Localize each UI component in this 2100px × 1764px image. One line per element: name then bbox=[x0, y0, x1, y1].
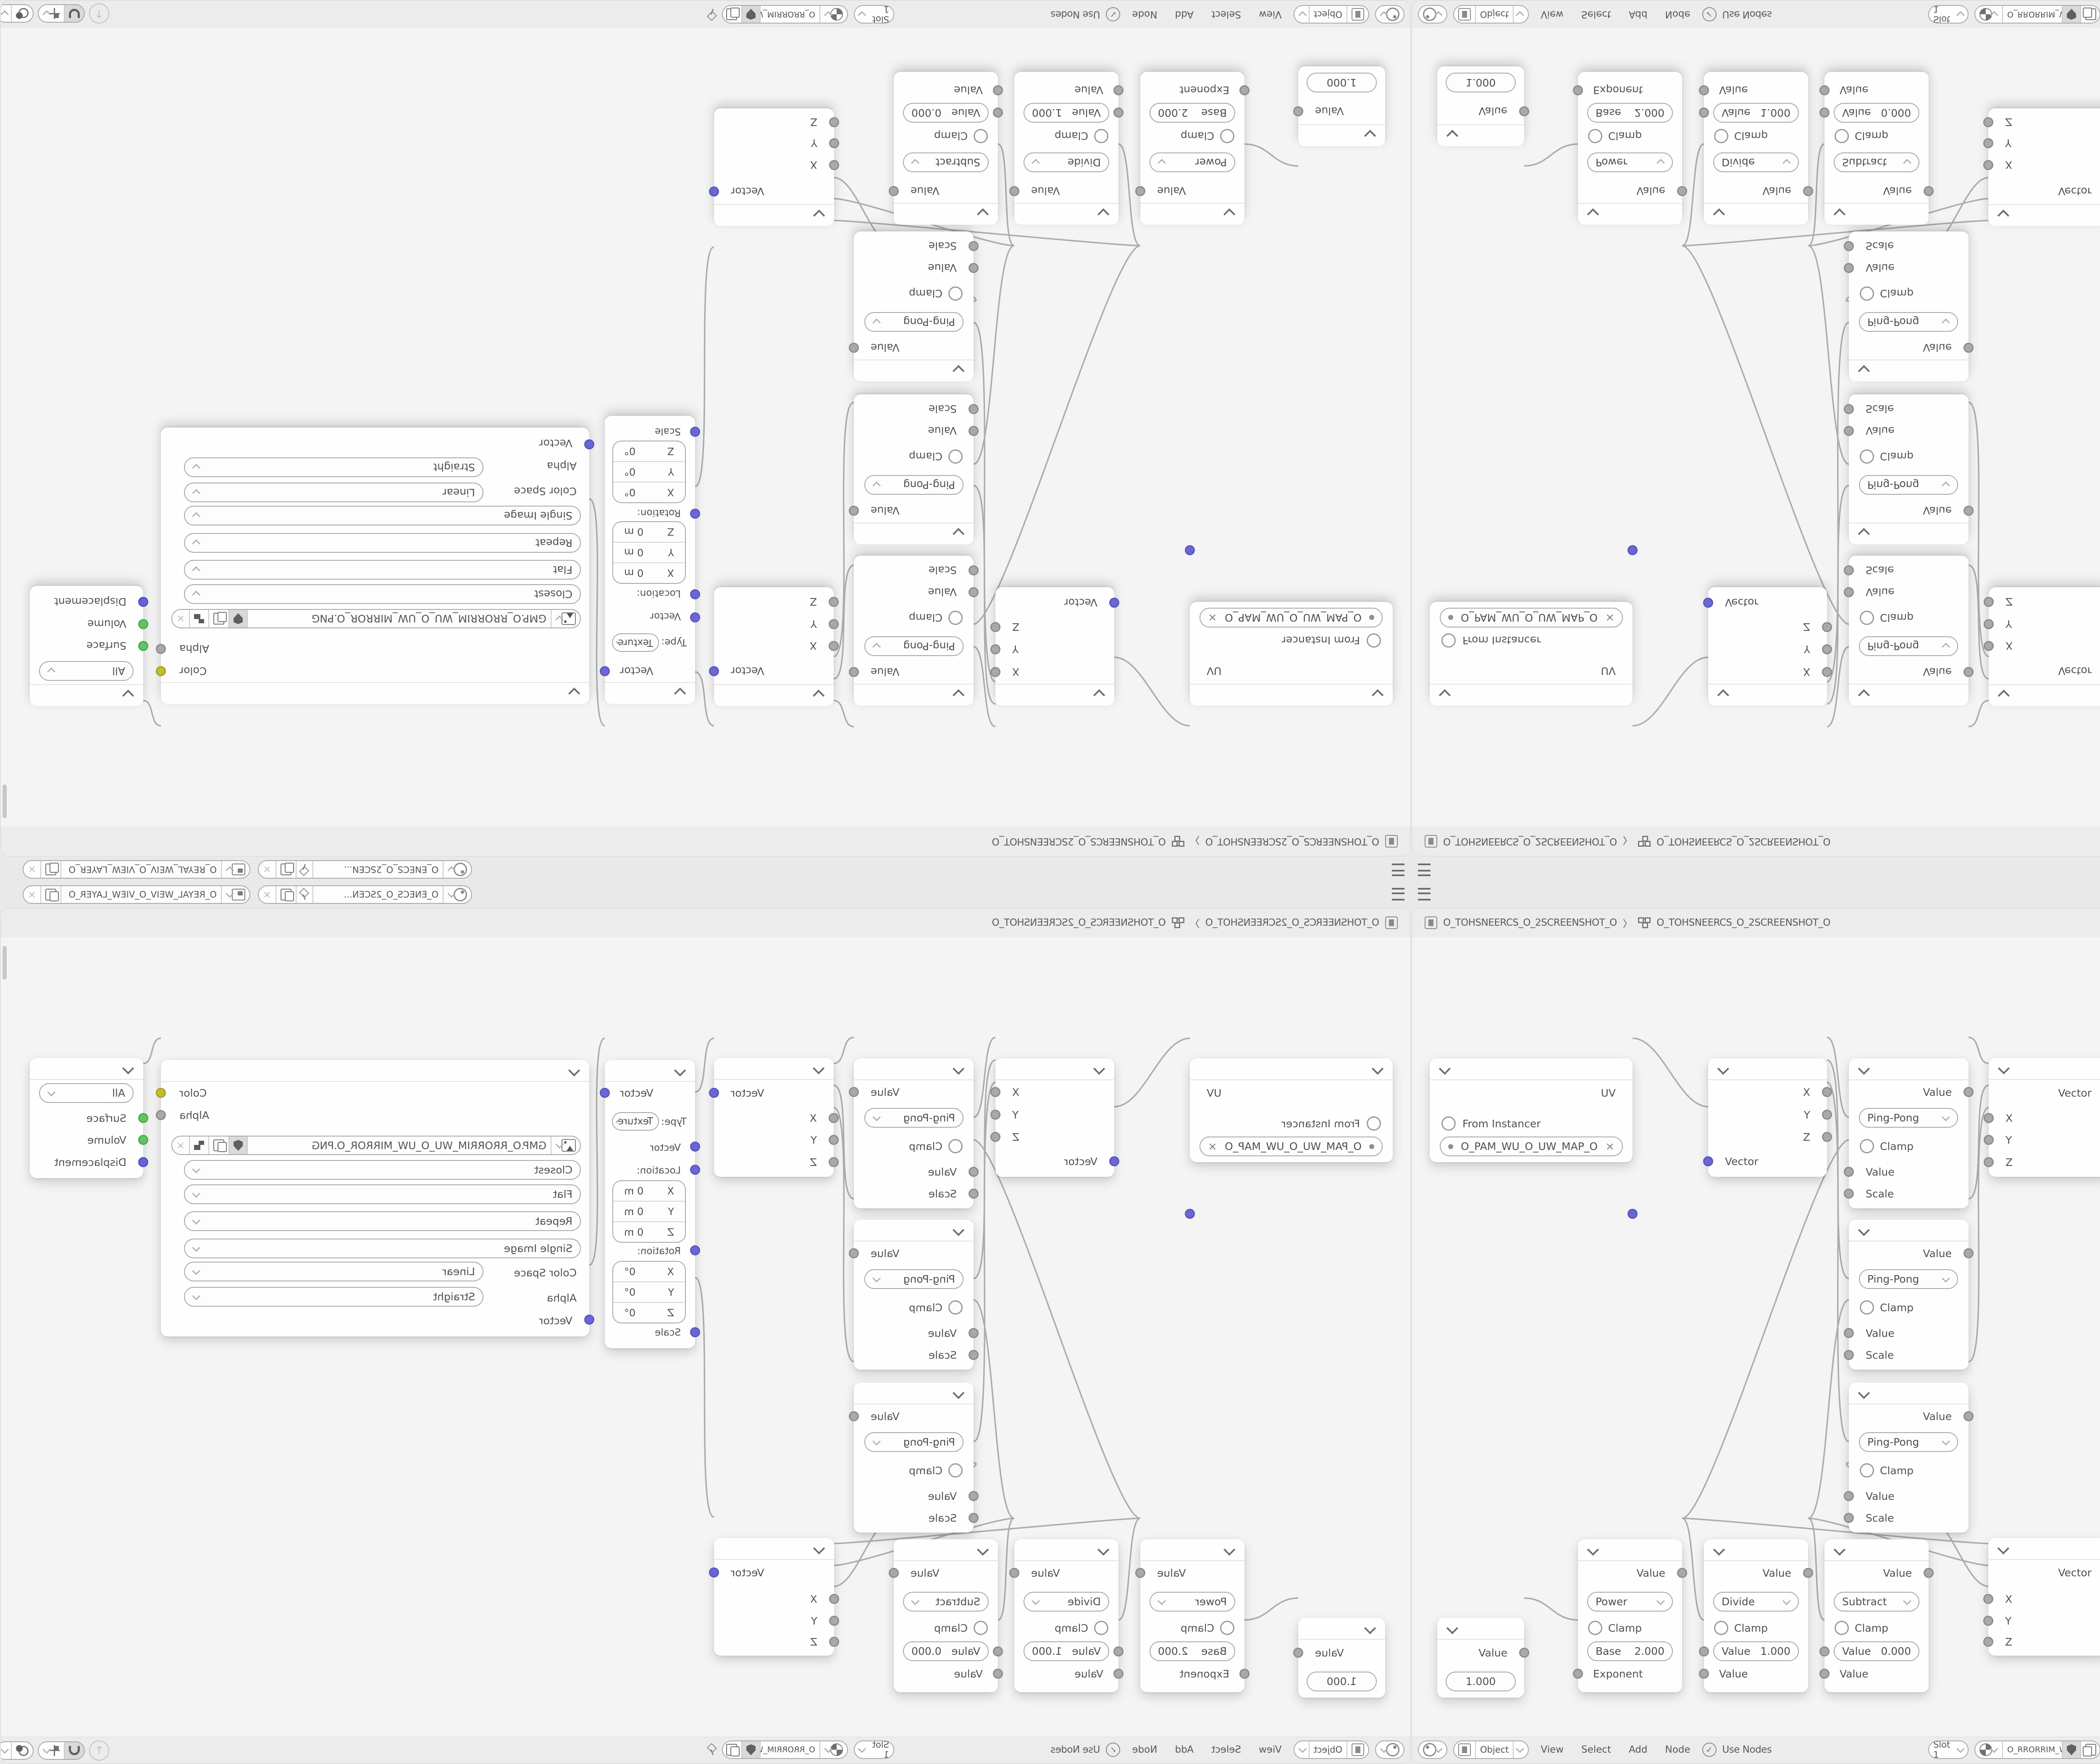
operation-dropdown[interactable]: Divide bbox=[1713, 152, 1799, 172]
node-math-divide[interactable]: Value Divide Clamp Value1.000 Value bbox=[1014, 1539, 1118, 1692]
node-header[interactable] bbox=[1190, 1058, 1393, 1080]
node-header[interactable] bbox=[1708, 684, 1827, 706]
value2-input-socket[interactable] bbox=[993, 85, 1003, 95]
z-input-socket[interactable] bbox=[829, 1637, 839, 1647]
shader-type-selector[interactable]: Object bbox=[1294, 1740, 1369, 1759]
y-input-socket[interactable] bbox=[1984, 1135, 1994, 1145]
operation-dropdown[interactable]: Ping-Pong bbox=[1859, 1432, 1958, 1452]
value-input-socket[interactable] bbox=[969, 263, 979, 273]
image-filename[interactable]: GMP.O_RRORRIM_WU_O_UW_MIRROR_O.PNG bbox=[247, 1137, 551, 1154]
z-input-socket[interactable] bbox=[1983, 117, 1993, 127]
operation-dropdown[interactable]: Power bbox=[1150, 1592, 1235, 1612]
unlink-button[interactable]: × bbox=[172, 610, 189, 627]
value-input-socket[interactable] bbox=[1844, 263, 1854, 273]
base-field[interactable]: Base2.000 bbox=[1150, 1641, 1235, 1661]
uv-output-socket[interactable] bbox=[1185, 545, 1195, 555]
node-header[interactable] bbox=[1988, 204, 2100, 226]
editor-type-selector[interactable] bbox=[1418, 1740, 1447, 1759]
vector-input-socket[interactable] bbox=[1109, 598, 1119, 608]
slot-value[interactable]: Slot 1 bbox=[1929, 6, 1954, 23]
node-header[interactable] bbox=[1704, 203, 1808, 225]
breadcrumb-nodetree[interactable]: O_TOHSNEERCS_O_2SCREENSHOT_O bbox=[1656, 917, 1830, 928]
menu-add[interactable]: Add bbox=[1175, 9, 1194, 20]
value2-input-socket[interactable] bbox=[1819, 85, 1830, 95]
x-input-socket[interactable] bbox=[829, 1113, 839, 1123]
uv-output-socket[interactable] bbox=[1627, 1209, 1638, 1219]
collapsed-menus-button[interactable] bbox=[1392, 864, 1404, 876]
checkbox[interactable] bbox=[948, 449, 963, 464]
node-value[interactable]: Value 1.000 bbox=[1298, 66, 1385, 146]
node-header[interactable] bbox=[1014, 1539, 1118, 1561]
checkbox[interactable] bbox=[948, 1463, 963, 1478]
projection-dropdown[interactable]: Flat bbox=[184, 1184, 581, 1204]
node-math-pingpong-y[interactable]: Value Ping-Pong Clamp Value Scale bbox=[1849, 394, 1969, 544]
node-material-output[interactable]: All Surface Volume Displacement bbox=[30, 1058, 143, 1178]
value-input-socket[interactable] bbox=[969, 1167, 979, 1177]
clear-icon[interactable]: × bbox=[1605, 612, 1614, 623]
node-math-subtract[interactable]: Value Subtract Clamp Value0.000 Value bbox=[894, 1539, 998, 1692]
volume-input-socket[interactable] bbox=[138, 619, 148, 629]
operation-dropdown[interactable]: Ping-Pong bbox=[1859, 1269, 1958, 1289]
slot-selector[interactable]: Slot 1 bbox=[1928, 5, 1969, 24]
node-header[interactable] bbox=[854, 1058, 974, 1080]
overlap-controls[interactable] bbox=[1, 4, 34, 23]
clamp-row[interactable]: Clamp bbox=[1835, 1621, 1888, 1635]
checkbox[interactable] bbox=[1094, 1621, 1108, 1635]
value-output-socket[interactable] bbox=[1135, 1568, 1145, 1578]
operation-dropdown[interactable]: Subtract bbox=[903, 152, 989, 172]
value-output-socket[interactable] bbox=[1924, 186, 1934, 196]
fake-user-button[interactable] bbox=[2063, 1741, 2081, 1758]
node-uv-map[interactable]: UV From Instancer O_PAM_WU_O_UW_MAP_O × bbox=[1190, 1058, 1393, 1162]
copy-icon[interactable] bbox=[40, 886, 60, 903]
node-math-pingpong-x[interactable]: Value Ping-Pong Clamp Value Scale bbox=[1849, 556, 1969, 706]
checkbox[interactable] bbox=[1860, 611, 1874, 625]
from-instancer-row[interactable]: From Instancer bbox=[1441, 1116, 1541, 1131]
base-field[interactable]: Base2.000 bbox=[1150, 103, 1235, 123]
node-combine-xyz-scale[interactable]: Vector X Y Z bbox=[1988, 1538, 2100, 1656]
node-header[interactable] bbox=[714, 1538, 834, 1560]
value2-input-socket[interactable] bbox=[1113, 1669, 1123, 1679]
y-input-socket[interactable] bbox=[829, 138, 839, 148]
operation-dropdown[interactable]: Ping-Pong bbox=[864, 475, 963, 495]
node-separate-xyz[interactable]: X Y Z Vector bbox=[995, 1058, 1114, 1177]
menu-select[interactable]: Select bbox=[1211, 1744, 1241, 1755]
operation-dropdown[interactable]: Ping-Pong bbox=[864, 636, 963, 656]
target-dropdown[interactable]: All bbox=[39, 1083, 134, 1103]
uv-map-dropdown[interactable]: O_PAM_WU_O_UW_MAP_O × bbox=[1200, 1137, 1383, 1156]
checkbox[interactable] bbox=[948, 1139, 963, 1153]
extension-dropdown[interactable]: Repeat bbox=[184, 1211, 581, 1231]
checkbox[interactable] bbox=[1860, 286, 1874, 301]
z-input-socket[interactable] bbox=[829, 117, 839, 127]
checkbox[interactable] bbox=[1441, 1116, 1456, 1131]
clamp-row[interactable]: Clamp bbox=[909, 1463, 963, 1478]
vector-output-socket[interactable] bbox=[600, 1088, 610, 1098]
operation-dropdown[interactable]: Subtract bbox=[1834, 1592, 1919, 1612]
node-math-divide[interactable]: Value Divide Clamp Value1.000 Value bbox=[1704, 1539, 1808, 1692]
unlink-button[interactable]: × bbox=[259, 861, 276, 878]
value2-input-socket[interactable] bbox=[1113, 85, 1123, 95]
displacement-input-socket[interactable] bbox=[138, 597, 148, 607]
base-field[interactable]: Base2.000 bbox=[1587, 103, 1673, 123]
operation-dropdown[interactable]: Ping-Pong bbox=[1859, 312, 1958, 332]
rotation-vector-widget[interactable]: X0° Y0° Z0° bbox=[612, 441, 686, 503]
value-field[interactable]: Value1.000 bbox=[1713, 103, 1799, 123]
node-header[interactable] bbox=[854, 360, 974, 381]
remove-button[interactable]: × bbox=[24, 886, 40, 903]
node-header[interactable] bbox=[1849, 684, 1969, 706]
checkbox[interactable] bbox=[1714, 129, 1728, 143]
scale-input-socket[interactable] bbox=[969, 1189, 979, 1199]
x-output-socket[interactable] bbox=[990, 667, 1000, 677]
y-output-socket[interactable] bbox=[1822, 1110, 1832, 1120]
operation-dropdown[interactable]: Ping-Pong bbox=[1859, 636, 1958, 656]
value-field[interactable]: Value0.000 bbox=[1834, 1641, 1919, 1661]
auto-offset-icon[interactable]: ↑ bbox=[89, 1740, 109, 1761]
x-input-socket[interactable] bbox=[829, 1594, 839, 1604]
node-math-subtract[interactable]: Value Subtract Clamp Value0.000 Value bbox=[1824, 72, 1929, 225]
base-field[interactable]: Base2.000 bbox=[1587, 1641, 1673, 1661]
scene-selector[interactable]: O_ENECS_O_2SCEN... × bbox=[258, 860, 472, 879]
node-canvas[interactable]: UV From Instancer O_PAM_WU_O_UW_MAP_O × … bbox=[1412, 937, 2100, 1737]
y-output-socket[interactable] bbox=[990, 644, 1000, 654]
value-field[interactable]: 1.000 bbox=[1307, 1672, 1377, 1691]
pin-icon[interactable] bbox=[296, 861, 312, 878]
operation-dropdown[interactable]: Ping-Pong bbox=[1859, 475, 1958, 495]
node-header[interactable] bbox=[1140, 203, 1244, 225]
checkbox[interactable] bbox=[974, 1621, 988, 1635]
value-output-socket[interactable] bbox=[849, 667, 859, 677]
menu-select[interactable]: Select bbox=[1581, 1744, 1611, 1755]
overlap-icon[interactable] bbox=[11, 1742, 33, 1759]
alpha-dropdown[interactable]: Straight bbox=[184, 1287, 483, 1307]
node-header[interactable] bbox=[1989, 684, 2100, 706]
operation-dropdown[interactable]: Ping-Pong bbox=[864, 1432, 963, 1452]
node-header[interactable] bbox=[1578, 1539, 1682, 1561]
color-space-dropdown[interactable]: Linear bbox=[184, 1262, 483, 1281]
clamp-row[interactable]: Clamp bbox=[909, 286, 963, 301]
value-input-socket[interactable] bbox=[993, 108, 1003, 118]
value-field[interactable]: 1.000 bbox=[1446, 73, 1516, 92]
type-dropdown[interactable]: Texture bbox=[612, 633, 659, 652]
node-math-pingpong-z[interactable]: Value Ping-Pong Clamp Value Scale bbox=[854, 1383, 974, 1533]
vector-input-socket[interactable] bbox=[690, 612, 700, 622]
node-separate-xyz[interactable]: X Y Z Vector bbox=[995, 587, 1114, 706]
auto-offset-icon[interactable]: ↑ bbox=[89, 3, 109, 24]
value-input-socket[interactable] bbox=[1819, 108, 1830, 118]
clamp-row[interactable]: Clamp bbox=[909, 449, 963, 464]
scene-name[interactable]: O_ENECS_O_2SCEN... bbox=[312, 886, 443, 903]
z-output-socket[interactable] bbox=[990, 1132, 1000, 1142]
node-uv-map[interactable]: UV From Instancer O_PAM_WU_O_UW_MAP_O × bbox=[1190, 602, 1393, 706]
value-output-socket[interactable] bbox=[1963, 1087, 1974, 1097]
copy-icon[interactable] bbox=[722, 6, 741, 23]
menu-select[interactable]: Select bbox=[1581, 9, 1611, 20]
node-math-pingpong-z[interactable]: Value Ping-Pong Clamp Value Scale bbox=[1849, 1383, 1969, 1533]
value2-input-socket[interactable] bbox=[1699, 1669, 1709, 1679]
shader-type-selector[interactable]: Object bbox=[1453, 1740, 1529, 1759]
z-output-socket[interactable] bbox=[990, 622, 1000, 632]
value2-input-socket[interactable] bbox=[993, 1669, 1003, 1679]
z-output-socket[interactable] bbox=[1822, 1132, 1832, 1142]
value-output-socket[interactable] bbox=[1519, 1648, 1529, 1658]
value-output-socket[interactable] bbox=[1803, 1568, 1813, 1578]
value-input-socket[interactable] bbox=[969, 1328, 979, 1338]
value-output-socket[interactable] bbox=[1963, 1248, 1974, 1258]
operation-dropdown[interactable]: Ping-Pong bbox=[1859, 1108, 1958, 1128]
node-header[interactable] bbox=[854, 1220, 974, 1242]
node-header[interactable] bbox=[605, 1060, 695, 1082]
shader-type-selector[interactable]: Object bbox=[1453, 5, 1529, 24]
clamp-row[interactable]: Clamp bbox=[1835, 129, 1888, 143]
z-output-socket[interactable] bbox=[1822, 622, 1832, 632]
value-input-socket[interactable] bbox=[1699, 108, 1709, 118]
x-input-socket[interactable] bbox=[829, 160, 839, 170]
node-header[interactable] bbox=[1849, 1383, 1969, 1404]
value-field[interactable]: Value1.000 bbox=[1024, 103, 1109, 123]
surface-input-socket[interactable] bbox=[138, 1113, 148, 1123]
shader-type-value[interactable]: Object bbox=[1476, 1741, 1514, 1758]
node-combine-xyz-scale[interactable]: Vector X Y Z bbox=[714, 108, 834, 226]
use-nodes-checkbox[interactable]: ✓ bbox=[1106, 7, 1120, 21]
node-header[interactable] bbox=[1849, 1058, 1969, 1080]
node-combine-xyz[interactable]: Vector X Y Z bbox=[714, 587, 834, 706]
copy-icon[interactable] bbox=[276, 861, 296, 878]
value-output-socket[interactable] bbox=[1135, 186, 1145, 196]
checkbox[interactable] bbox=[948, 286, 963, 301]
menu-node[interactable]: Node bbox=[1665, 1744, 1690, 1755]
material-selector[interactable]: O_RRORRIM_WU_O_UW_MIRROR_O × bbox=[1974, 1740, 2100, 1759]
clamp-row[interactable]: Clamp bbox=[1055, 129, 1108, 143]
y-input-socket[interactable] bbox=[1983, 1616, 1993, 1626]
fake-user-button[interactable] bbox=[228, 610, 247, 627]
location-input-socket[interactable] bbox=[690, 1165, 700, 1175]
surface-input-socket[interactable] bbox=[138, 641, 148, 651]
node-combine-xyz[interactable]: Vector X Y Z bbox=[1989, 1058, 2100, 1177]
volume-input-socket[interactable] bbox=[138, 1135, 148, 1145]
node-uv-map[interactable]: UV From Instancer O_PAM_WU_O_UW_MAP_O × bbox=[1430, 1058, 1633, 1162]
checkbox[interactable] bbox=[1835, 1621, 1849, 1635]
copy-icon[interactable] bbox=[276, 886, 296, 903]
node-header[interactable] bbox=[161, 1060, 589, 1082]
use-nodes-checkbox[interactable]: ✓ bbox=[1106, 1743, 1120, 1757]
value-output-socket[interactable] bbox=[889, 186, 899, 196]
checkbox[interactable] bbox=[974, 129, 988, 143]
scale-input-socket[interactable] bbox=[1844, 404, 1854, 414]
breadcrumb-nodetree[interactable]: O_TOHSNEERCS_O_2SCREENSHOT_O bbox=[992, 836, 1166, 847]
node-value[interactable]: Value 1.000 bbox=[1437, 66, 1524, 146]
clamp-row[interactable]: Clamp bbox=[1860, 1300, 1914, 1315]
operation-dropdown[interactable]: Ping-Pong bbox=[864, 312, 963, 332]
exponent-input-socket[interactable] bbox=[1239, 1669, 1249, 1679]
value-field[interactable]: Value0.000 bbox=[1834, 103, 1919, 123]
copy-icon[interactable] bbox=[2081, 1741, 2100, 1758]
menu-add[interactable]: Add bbox=[1629, 1744, 1648, 1755]
overlap-icon[interactable] bbox=[11, 5, 33, 22]
slot-selector[interactable]: Slot 1 bbox=[854, 5, 894, 24]
source-dropdown[interactable]: Single Image bbox=[184, 506, 581, 525]
node-header[interactable] bbox=[1437, 124, 1524, 146]
value-input-socket[interactable] bbox=[1844, 1167, 1854, 1177]
unlink-button[interactable]: × bbox=[172, 1137, 189, 1154]
node-math-pingpong-x[interactable]: Value Ping-Pong Clamp Value Scale bbox=[1849, 1058, 1969, 1208]
shader-type-selector[interactable]: Object bbox=[1294, 5, 1369, 24]
alpha-dropdown[interactable]: Straight bbox=[184, 457, 483, 477]
pin-icon[interactable] bbox=[296, 886, 312, 903]
snap-target-icon[interactable] bbox=[39, 1742, 64, 1759]
clamp-row[interactable]: Clamp bbox=[1181, 1621, 1234, 1635]
node-header[interactable] bbox=[995, 1058, 1114, 1080]
uv-map-dropdown[interactable]: O_PAM_WU_O_UW_MAP_O × bbox=[1440, 608, 1623, 627]
shader-type-value[interactable]: Object bbox=[1309, 6, 1347, 23]
node-header[interactable] bbox=[1140, 1539, 1244, 1561]
source-dropdown[interactable]: Single Image bbox=[184, 1239, 581, 1258]
scale-input-socket[interactable] bbox=[1844, 1189, 1854, 1199]
node-header[interactable] bbox=[1849, 360, 1969, 381]
shader-type-value[interactable]: Object bbox=[1309, 1741, 1347, 1758]
collapsed-menus-button[interactable] bbox=[1418, 864, 1431, 876]
y-input-socket[interactable] bbox=[829, 619, 839, 629]
node-header[interactable] bbox=[854, 522, 974, 544]
node-combine-xyz[interactable]: Vector X Y Z bbox=[714, 1058, 834, 1177]
node-header[interactable] bbox=[714, 204, 834, 226]
value-output-socket[interactable] bbox=[1803, 186, 1813, 196]
node-header[interactable] bbox=[1849, 1220, 1969, 1242]
snap-controls[interactable] bbox=[38, 4, 85, 23]
scene-selector[interactable]: O_ENECS_O_2SCEN... × bbox=[258, 885, 472, 904]
slot-value[interactable]: Slot 1 bbox=[868, 1741, 893, 1758]
value-field[interactable]: 1.000 bbox=[1307, 73, 1377, 92]
image-filename[interactable]: GMP.O_RRORRIM_WU_O_UW_MIRROR_O.PNG bbox=[247, 610, 551, 627]
view-layer-selector[interactable]: O_REYAL_WEIV_O_VIEW_LAYER_O × bbox=[23, 860, 250, 879]
material-selector[interactable]: O_RRORRIM_WU_O_UW_MIRROR_O × bbox=[1974, 5, 2100, 24]
scale-input-socket[interactable] bbox=[1844, 1513, 1854, 1523]
rotation-input-socket[interactable] bbox=[690, 1245, 700, 1255]
image-selector[interactable]: GMP.O_RRORRIM_WU_O_UW_MIRROR_O.PNG × bbox=[171, 609, 581, 628]
clear-icon[interactable]: × bbox=[1605, 1141, 1614, 1152]
node-canvas[interactable]: UV From Instancer O_PAM_WU_O_UW_MAP_O × … bbox=[1, 937, 1410, 1737]
node-math-pingpong-z[interactable]: Value Ping-Pong Clamp Value Scale bbox=[1849, 231, 1969, 381]
checkbox[interactable] bbox=[1860, 1463, 1874, 1478]
menu-view[interactable]: View bbox=[1541, 9, 1564, 20]
snap-target-icon[interactable] bbox=[39, 5, 64, 22]
menu-view[interactable]: View bbox=[1259, 9, 1282, 20]
material-selector[interactable]: O_RRORRIM_WU_O_UW_MIRROR_O × bbox=[722, 1740, 848, 1759]
clamp-row[interactable]: Clamp bbox=[1860, 611, 1914, 625]
rotation-vector-widget[interactable]: X0° Y0° Z0° bbox=[612, 1261, 686, 1323]
value-field[interactable]: 1.000 bbox=[1446, 1672, 1516, 1691]
node-header[interactable] bbox=[1988, 1538, 2100, 1560]
value-output-socket[interactable] bbox=[1677, 186, 1687, 196]
clamp-row[interactable]: Clamp bbox=[1860, 1463, 1914, 1478]
value-input-socket[interactable] bbox=[1699, 1646, 1709, 1656]
node-header[interactable] bbox=[894, 1539, 998, 1561]
clamp-row[interactable]: Clamp bbox=[934, 129, 988, 143]
slot-value[interactable]: Slot 1 bbox=[1929, 1741, 1954, 1758]
value-input-socket[interactable] bbox=[1113, 1646, 1123, 1656]
vector-output-socket[interactable] bbox=[709, 1088, 719, 1098]
uv-map-dropdown[interactable]: O_PAM_WU_O_UW_MAP_O × bbox=[1440, 1137, 1623, 1156]
checkbox[interactable] bbox=[1441, 633, 1456, 648]
vector-output-socket[interactable] bbox=[709, 1567, 719, 1578]
location-input-socket[interactable] bbox=[690, 589, 700, 599]
uv-output-socket[interactable] bbox=[1627, 545, 1638, 555]
fake-user-button[interactable] bbox=[228, 1137, 247, 1154]
z-input-socket[interactable] bbox=[1983, 1637, 1993, 1647]
node-header[interactable] bbox=[30, 1058, 143, 1080]
value-input-socket[interactable] bbox=[969, 587, 979, 597]
z-input-socket[interactable] bbox=[829, 1157, 839, 1167]
z-input-socket[interactable] bbox=[1984, 597, 1994, 607]
view-layer-name[interactable]: O_REYAL_WEIV_O_VIEW_LAYER_O bbox=[60, 861, 221, 878]
node-math-power[interactable]: Value Power Clamp Base2.000 Exponent bbox=[1578, 72, 1682, 225]
menu-view[interactable]: View bbox=[1541, 1744, 1564, 1755]
node-canvas[interactable]: UV From Instancer O_PAM_WU_O_UW_MAP_O × … bbox=[1412, 27, 2100, 827]
value-input-socket[interactable] bbox=[969, 426, 979, 436]
checkbox[interactable] bbox=[1588, 129, 1602, 143]
checkbox[interactable] bbox=[1714, 1621, 1728, 1635]
shader-type-value[interactable]: Object bbox=[1476, 6, 1514, 23]
node-header[interactable] bbox=[1430, 1058, 1633, 1080]
slot-value[interactable]: Slot 1 bbox=[868, 6, 893, 23]
node-separate-xyz[interactable]: X Y Z Vector bbox=[1708, 587, 1827, 706]
from-instancer-row[interactable]: From Instancer bbox=[1441, 633, 1541, 648]
node-header[interactable] bbox=[605, 682, 695, 704]
scale-input-socket[interactable] bbox=[690, 1327, 700, 1337]
checkbox[interactable] bbox=[1367, 633, 1381, 648]
value-field[interactable]: Value1.000 bbox=[1024, 1641, 1109, 1661]
value-input-socket[interactable] bbox=[1844, 1328, 1854, 1338]
value-output-socket[interactable] bbox=[1677, 1568, 1687, 1578]
node-math-power[interactable]: Value Power Clamp Base2.000 Exponent bbox=[1578, 1539, 1682, 1692]
color-output-socket[interactable] bbox=[156, 666, 166, 676]
value-output-socket[interactable] bbox=[849, 1087, 859, 1097]
node-mapping[interactable]: Vector Type: Texture Vector Location: X0… bbox=[605, 416, 695, 704]
material-selector[interactable]: O_RRORRIM_WU_O_UW_MIRROR_O × bbox=[722, 5, 848, 24]
copy-icon[interactable] bbox=[722, 1741, 741, 1758]
scale-input-socket[interactable] bbox=[969, 404, 979, 414]
snap-magnet-icon[interactable] bbox=[64, 5, 84, 22]
alpha-output-socket[interactable] bbox=[156, 1110, 166, 1120]
exponent-input-socket[interactable] bbox=[1573, 85, 1583, 95]
node-header[interactable] bbox=[1298, 1618, 1385, 1640]
node-header[interactable] bbox=[714, 684, 834, 706]
snap-magnet-icon[interactable] bbox=[64, 1742, 84, 1759]
value-output-socket[interactable] bbox=[1519, 106, 1529, 116]
value-output-socket[interactable] bbox=[1963, 506, 1974, 516]
value-field[interactable]: Value1.000 bbox=[1713, 1641, 1799, 1661]
node-header[interactable] bbox=[1989, 1058, 2100, 1080]
value-output-socket[interactable] bbox=[849, 343, 859, 353]
clear-icon[interactable]: × bbox=[1208, 612, 1217, 623]
operation-dropdown[interactable]: Ping-Pong bbox=[864, 1108, 963, 1128]
slot-selector[interactable]: Slot 1 bbox=[1928, 1740, 1969, 1759]
node-value[interactable]: Value 1.000 bbox=[1437, 1618, 1524, 1698]
operation-dropdown[interactable]: Power bbox=[1150, 152, 1235, 172]
value-output-socket[interactable] bbox=[1009, 1568, 1019, 1578]
vector-output-socket[interactable] bbox=[600, 666, 610, 676]
node-image-texture[interactable]: Color Alpha GMP.O_RRORRIM_WU_O_UW_MIRROR… bbox=[161, 428, 589, 704]
value-input-socket[interactable] bbox=[1844, 426, 1854, 436]
value-output-socket[interactable] bbox=[1293, 1648, 1303, 1658]
operation-dropdown[interactable]: Divide bbox=[1024, 1592, 1109, 1612]
menu-node[interactable]: Node bbox=[1132, 9, 1157, 20]
clamp-row[interactable]: Clamp bbox=[909, 1139, 963, 1153]
node-math-divide[interactable]: Value Divide Clamp Value1.000 Value bbox=[1704, 72, 1808, 225]
target-dropdown[interactable]: All bbox=[39, 661, 134, 681]
editor-type-selector[interactable] bbox=[1418, 5, 1447, 24]
